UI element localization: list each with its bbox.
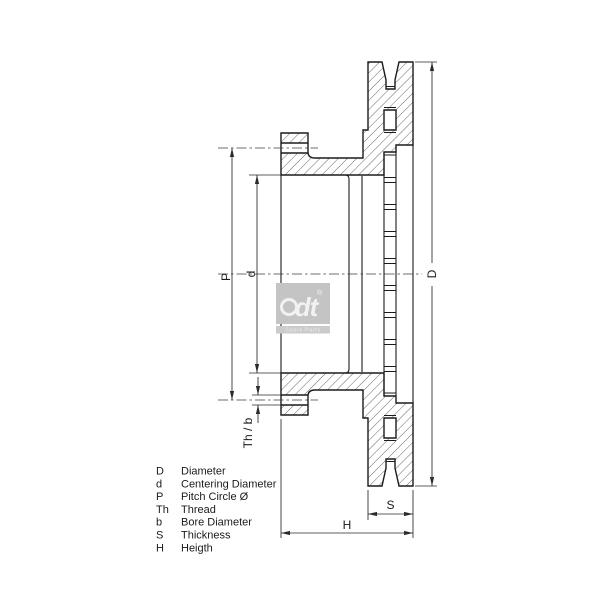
legend-key-Th: Th (156, 504, 169, 516)
dim-label-P: P (219, 273, 233, 281)
brake-disc-technical-drawing: D P d Th / b S (0, 0, 600, 600)
legend-key-S: S (156, 530, 163, 542)
dim-H-arrow-right (404, 531, 413, 535)
drawing-canvas: D P d Th / b S (0, 0, 600, 600)
legend: D Diameter d Centering Diameter P Pitch … (156, 466, 277, 555)
dim-label-d: d (244, 271, 258, 278)
dimension-Th-b: Th / b (241, 377, 281, 448)
dim-P-arrow-bottom (230, 391, 234, 400)
disc-lower-section (281, 373, 413, 486)
dim-S-arrow-left (368, 512, 377, 516)
legend-key-D: D (156, 466, 164, 478)
dimension-P: P (219, 148, 234, 400)
watermark-registered-mark: ® (317, 289, 323, 297)
dt-logo-watermark: dt ® Spare Parts (276, 283, 330, 334)
dim-label-Th-b: Th / b (241, 417, 255, 448)
watermark-logo-text: dt (295, 292, 320, 322)
legend-label-d: Centering Diameter (181, 479, 277, 491)
dim-P-arrow-top (230, 148, 234, 157)
disc-upper-section (281, 62, 413, 175)
legend-label-b: Bore Diameter (181, 517, 252, 529)
dim-label-S: S (386, 498, 394, 512)
dimension-D: D (415, 62, 439, 486)
dim-D-arrow-bottom (430, 477, 434, 486)
dim-d-arrow-top (255, 175, 259, 184)
dim-D-arrow-top (430, 62, 434, 71)
legend-key-d: d (156, 479, 162, 491)
dimension-S: S (368, 490, 413, 538)
vent-rib-pairs (384, 178, 396, 372)
legend-label-S: Thickness (181, 530, 231, 542)
legend-label-P: Pitch Circle Ø (181, 491, 249, 503)
legend-key-H: H (156, 543, 164, 555)
dimension-H: H (281, 419, 413, 538)
dim-label-H: H (343, 518, 352, 532)
legend-key-P: P (156, 491, 163, 503)
dim-S-arrow-right (404, 512, 413, 516)
dim-label-D: D (425, 269, 439, 278)
legend-label-D: Diameter (181, 466, 226, 478)
legend-label-H: Heigth (181, 543, 213, 555)
dim-d-arrow-bottom (255, 364, 259, 373)
legend-label-Th: Thread (181, 504, 216, 516)
dim-Thb-arrow-top (256, 386, 260, 395)
dim-H-arrow-left (281, 531, 290, 535)
legend-key-b: b (156, 517, 162, 529)
watermark-subtext: Spare Parts (285, 328, 321, 334)
dim-Thb-arrow-bottom (256, 405, 260, 414)
